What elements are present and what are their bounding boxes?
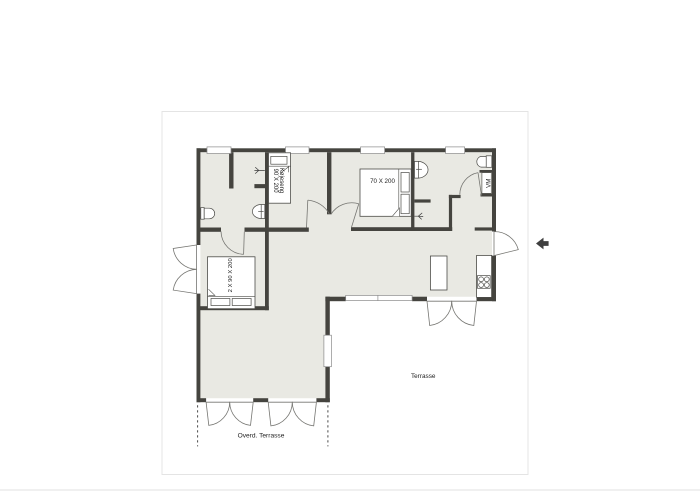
svg-text:Køjeseng90 X 200: Køjeseng90 X 200 — [272, 168, 284, 193]
svg-text:2 X 90 X 200: 2 X 90 X 200 — [228, 258, 234, 293]
svg-text:VM: VM — [485, 179, 492, 188]
svg-text:Overd. Terrasse: Overd. Terrasse — [238, 433, 285, 440]
svg-text:Terrasse: Terrasse — [411, 373, 436, 380]
svg-text:70 X 200: 70 X 200 — [370, 178, 395, 185]
